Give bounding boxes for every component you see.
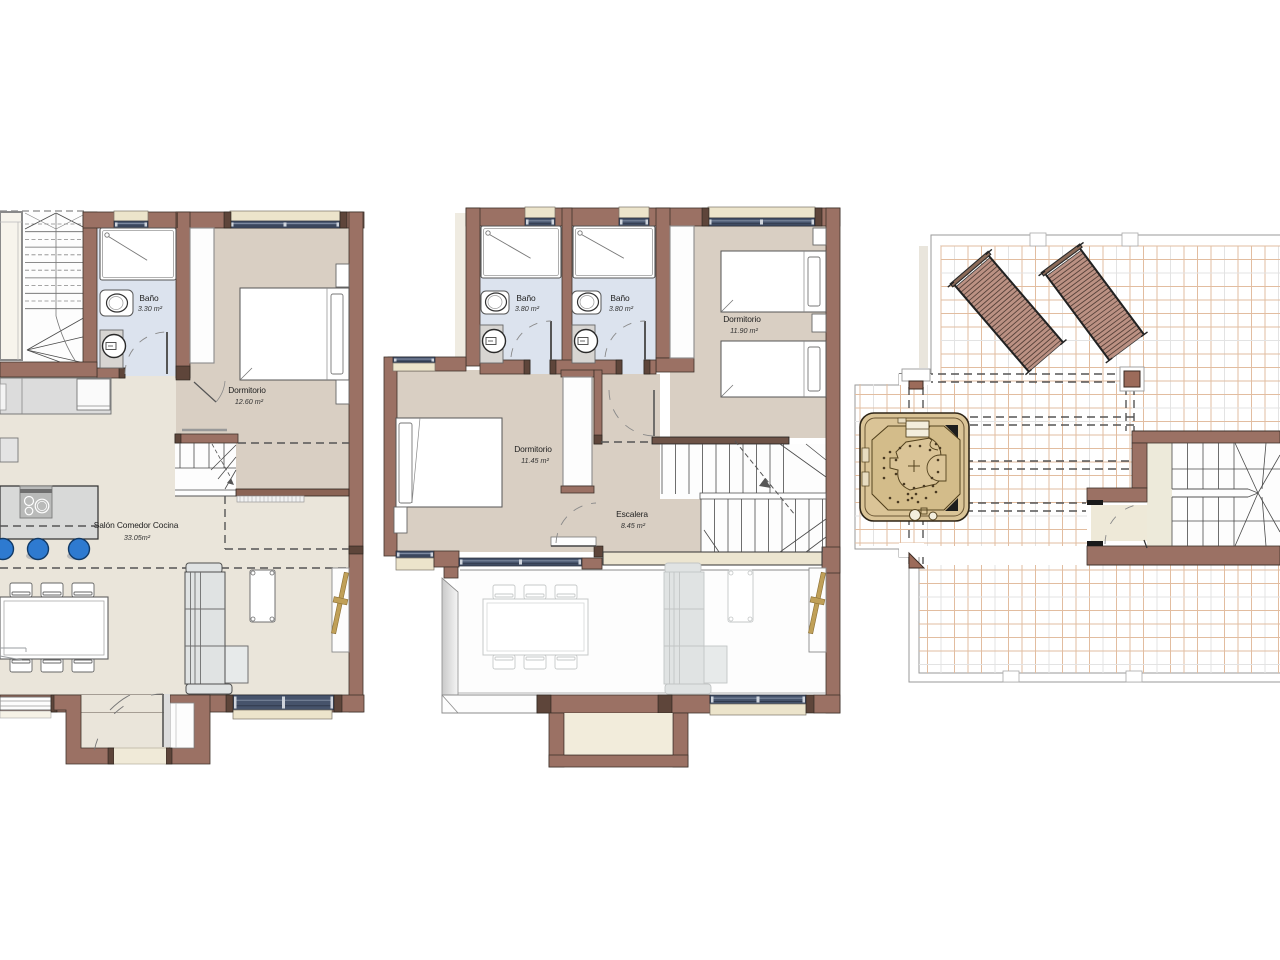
- svg-text:33.05m²: 33.05m²: [124, 533, 151, 542]
- svg-text:12.60 m²: 12.60 m²: [235, 397, 264, 406]
- svg-text:Escalera: Escalera: [616, 509, 648, 519]
- svg-text:Dormitorio: Dormitorio: [723, 314, 761, 324]
- svg-text:11.45 m²: 11.45 m²: [521, 456, 549, 465]
- svg-text:Baño: Baño: [139, 293, 159, 303]
- svg-text:Dormitorio: Dormitorio: [228, 385, 266, 395]
- svg-text:3.30 m²: 3.30 m²: [138, 304, 163, 313]
- svg-text:Baño: Baño: [516, 293, 536, 303]
- svg-text:11.90 m²: 11.90 m²: [730, 326, 758, 335]
- svg-text:Dormitorio: Dormitorio: [514, 444, 552, 454]
- svg-text:Baño: Baño: [610, 293, 630, 303]
- svg-text:Salón Comedor Cocina: Salón Comedor Cocina: [94, 520, 179, 530]
- svg-text:8.45 m²: 8.45 m²: [621, 521, 646, 530]
- svg-text:3.80 m²: 3.80 m²: [515, 304, 540, 313]
- svg-text:3.80 m²: 3.80 m²: [609, 304, 634, 313]
